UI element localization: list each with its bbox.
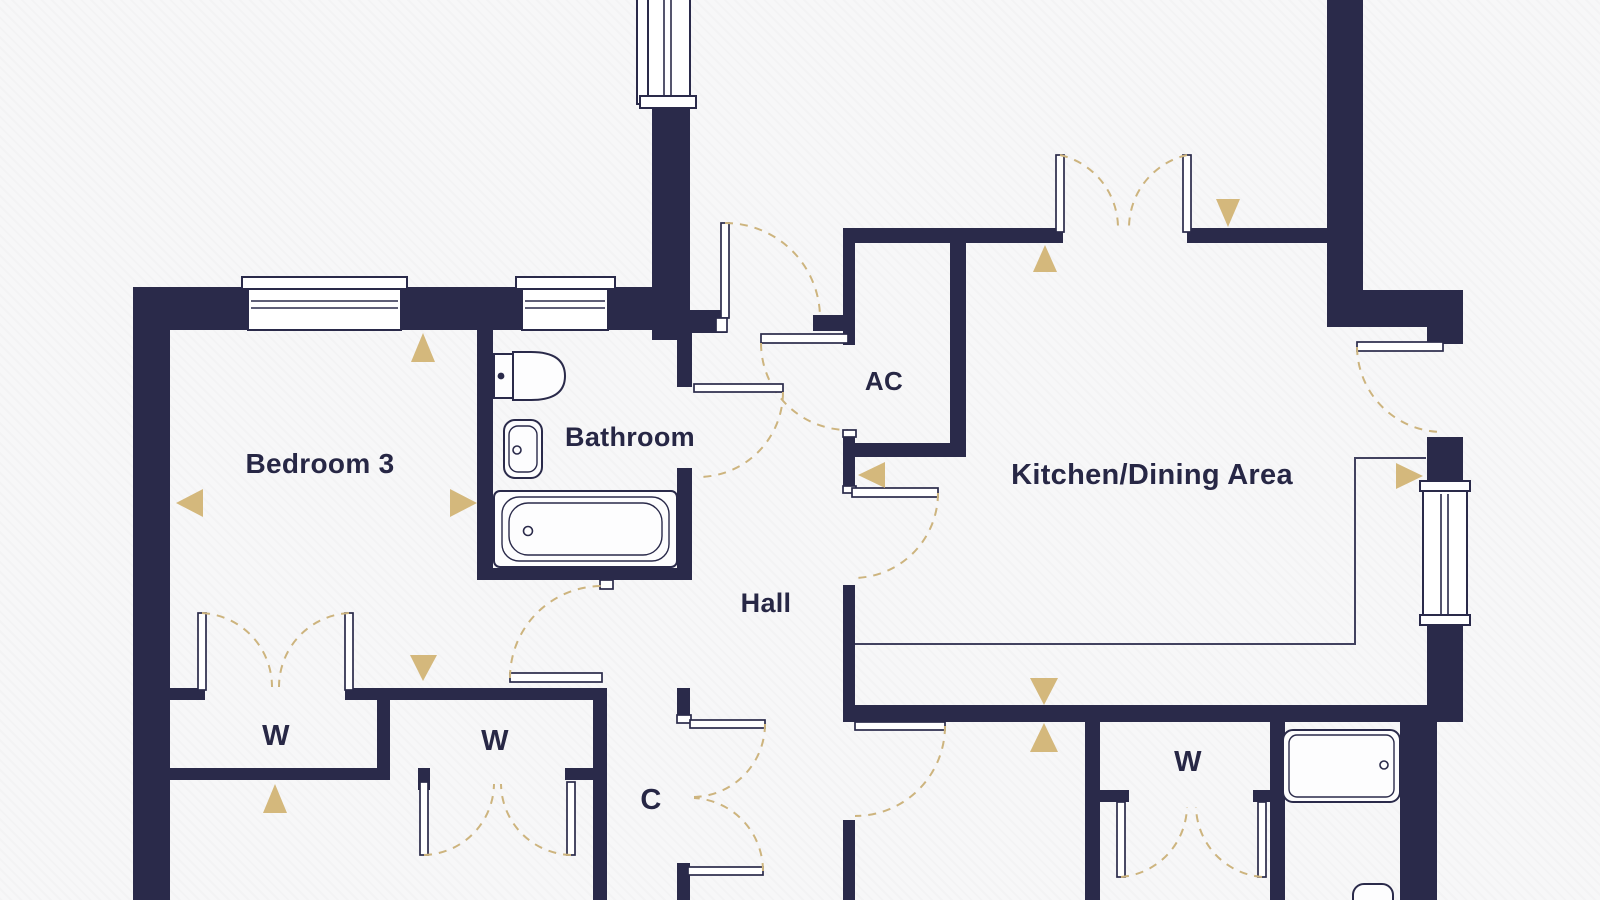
wall-top-c	[608, 287, 654, 330]
wall-c-left	[593, 688, 607, 900]
triangle-up-icon	[411, 333, 435, 362]
floor-plan: Bedroom 3 Bathroom AC Kitchen/Dining Are…	[0, 0, 1600, 900]
right-entry-door	[1357, 342, 1443, 432]
top-room-door	[716, 223, 820, 332]
wall-kitchen-top-a	[843, 228, 1063, 243]
top-room-window	[637, 0, 696, 108]
floor-plan-drawing: Bedroom 3 Bathroom AC Kitchen/Dining Are…	[0, 0, 1600, 900]
label-wardrobe-2: W	[481, 725, 509, 757]
wall-bathroom-right-lower	[677, 468, 692, 568]
wall-top-room-left	[652, 100, 690, 340]
wall-hall-lower	[843, 820, 855, 900]
wall-bathroom-right-upper	[677, 330, 692, 387]
toilet-ensuite-icon	[1353, 884, 1393, 900]
triangle-left-icon	[858, 462, 885, 488]
triangle-down-icon	[410, 655, 437, 681]
triangle-up-icon	[263, 784, 287, 813]
triangle-right-icon	[1396, 463, 1423, 489]
wardrobe-bedroom3-bifold-doors	[198, 613, 353, 690]
triangle-right-icon	[450, 489, 477, 517]
bathtub-icon	[494, 491, 677, 567]
hall-bottom-door	[855, 722, 945, 816]
wall-right-lower	[1400, 722, 1437, 900]
wall-left-exterior	[133, 287, 170, 900]
toilet-icon	[494, 352, 565, 400]
wall-w3-left	[1085, 722, 1100, 900]
wall-kitchen-bottom	[843, 705, 1463, 722]
wall-ac-bottom	[843, 443, 966, 457]
wall-w3-stub-left	[1100, 790, 1129, 802]
triangle-up-icon	[1030, 723, 1058, 752]
label-kitchen-dining: Kitchen/Dining Area	[1011, 459, 1293, 491]
wall-hall-kitchen-divider	[843, 585, 855, 705]
label-hall: Hall	[741, 588, 792, 618]
wardrobe-middle-bifold-doors	[420, 782, 575, 855]
wall-right-upper	[1327, 0, 1363, 327]
label-bathroom: Bathroom	[565, 422, 695, 452]
label-ac: AC	[865, 366, 903, 396]
wall-kitchen-top-b	[1187, 228, 1327, 243]
wall-right-step	[1363, 290, 1463, 327]
wall-right-below-window	[1427, 618, 1463, 705]
bathroom-door	[694, 384, 783, 477]
triangle-down-icon	[1030, 678, 1058, 705]
triangle-down-icon	[1216, 199, 1240, 227]
label-wardrobe-3: W	[1174, 746, 1202, 778]
bedroom-window	[242, 277, 407, 330]
triangle-left-icon	[176, 489, 203, 517]
label-cupboard: C	[640, 784, 661, 816]
bathroom-window	[516, 277, 615, 330]
kitchen-window	[1420, 481, 1470, 625]
label-wardrobe-1: W	[262, 720, 290, 752]
wall-w2-stub-right	[565, 768, 593, 780]
wall-ac-left	[843, 228, 855, 345]
top-room-double-doors	[1056, 155, 1191, 232]
wall-w-divider	[377, 688, 390, 780]
bedroom3-door	[510, 580, 613, 682]
wall-w3-stub-right	[1253, 790, 1285, 802]
basin-icon	[504, 420, 542, 478]
wall-w1-bottom	[170, 768, 390, 780]
wall-bathroom-bottom	[477, 568, 692, 580]
wall-ac-right	[950, 243, 966, 457]
cupboard-double-doors	[677, 715, 765, 875]
room-labels: Bedroom 3 Bathroom AC Kitchen/Dining Are…	[246, 366, 1294, 816]
wall-top-b	[401, 287, 522, 330]
kitchen-entry-door	[852, 488, 938, 578]
wardrobe-ensuite-bifold-doors	[1117, 802, 1266, 877]
wall-top-a	[133, 287, 248, 330]
label-bedroom-3: Bedroom 3	[246, 448, 395, 479]
shower-tray-icon	[1283, 730, 1400, 802]
triangle-up-icon	[1033, 245, 1057, 272]
ac-door	[761, 334, 856, 493]
wall-ac-post	[843, 430, 855, 493]
wall-bathroom-left	[477, 330, 493, 568]
